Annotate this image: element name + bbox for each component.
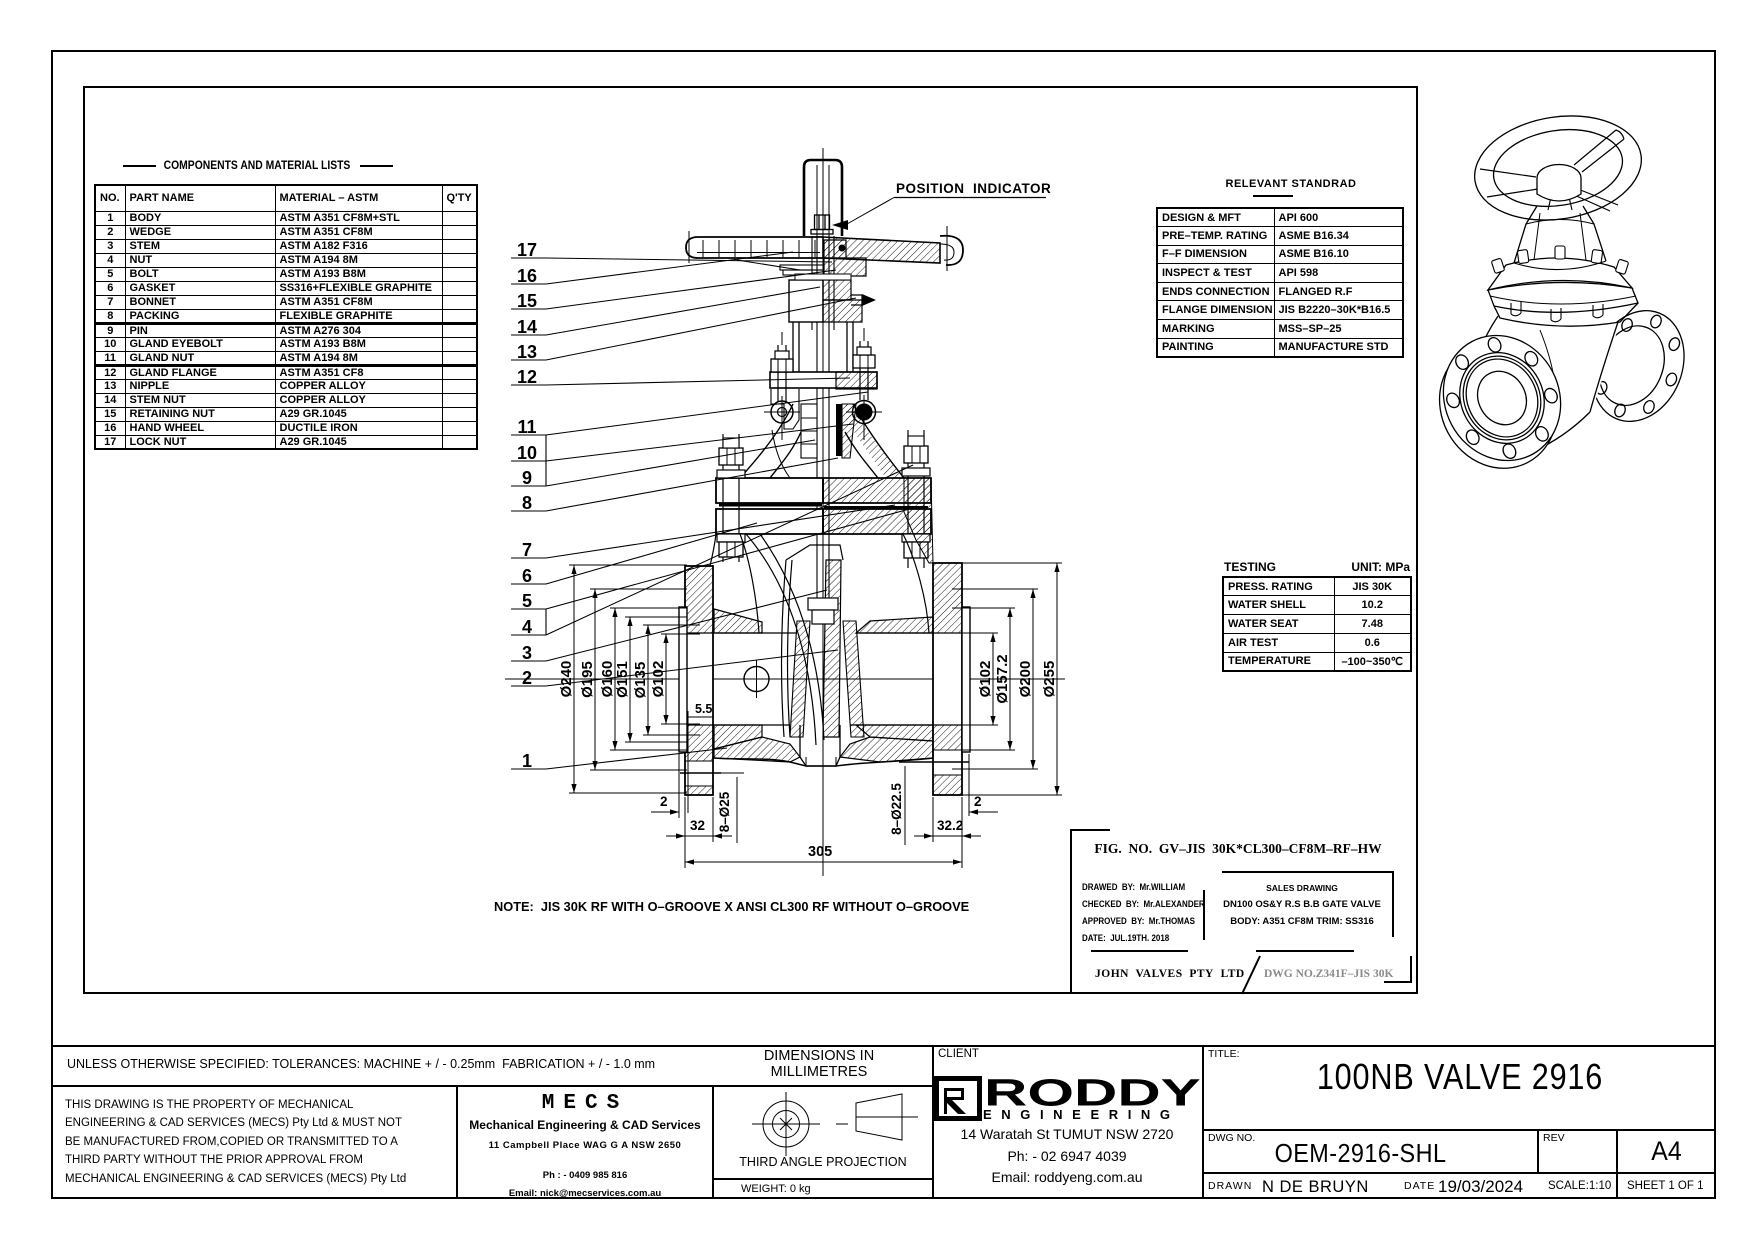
svg-text:5: 5 [522, 591, 532, 611]
svg-text:10: 10 [517, 443, 537, 463]
svg-text:Ø102: Ø102 [650, 661, 667, 698]
svg-text:6: 6 [522, 566, 532, 586]
svg-text:4: 4 [522, 617, 532, 637]
svg-text:32: 32 [690, 818, 705, 833]
svg-text:Ø240: Ø240 [558, 661, 575, 698]
svg-text:Ø151: Ø151 [614, 661, 631, 698]
svg-text:17: 17 [517, 240, 537, 260]
svg-text:305: 305 [808, 844, 832, 860]
svg-text:7: 7 [522, 540, 532, 560]
svg-text:2: 2 [522, 668, 532, 688]
svg-text:8: 8 [522, 493, 532, 513]
svg-text:Ø255: Ø255 [1041, 661, 1058, 698]
svg-text:1: 1 [522, 751, 532, 771]
svg-text:2: 2 [660, 794, 668, 809]
svg-text:32.2: 32.2 [937, 818, 963, 833]
svg-text:Ø157.2: Ø157.2 [994, 654, 1011, 703]
svg-text:16: 16 [517, 266, 537, 286]
svg-text:5.5: 5.5 [695, 702, 712, 716]
svg-text:3: 3 [522, 643, 532, 663]
svg-text:12: 12 [517, 367, 537, 387]
svg-text:Ø195: Ø195 [579, 661, 596, 698]
svg-text:Ø135: Ø135 [632, 662, 649, 699]
svg-text:Ø200: Ø200 [1017, 661, 1034, 698]
svg-text:8–Ø25: 8–Ø25 [717, 791, 732, 832]
svg-text:POSITION INDICATOR: POSITION INDICATOR [896, 181, 1051, 196]
svg-text:13: 13 [517, 342, 537, 362]
svg-text:15: 15 [517, 291, 537, 311]
svg-text:8–Ø22.5: 8–Ø22.5 [889, 783, 904, 835]
svg-text:14: 14 [517, 317, 537, 337]
svg-text:9: 9 [522, 468, 532, 488]
svg-text:11: 11 [517, 417, 536, 437]
svg-text:Ø102: Ø102 [977, 661, 994, 698]
svg-text:2: 2 [974, 794, 982, 809]
